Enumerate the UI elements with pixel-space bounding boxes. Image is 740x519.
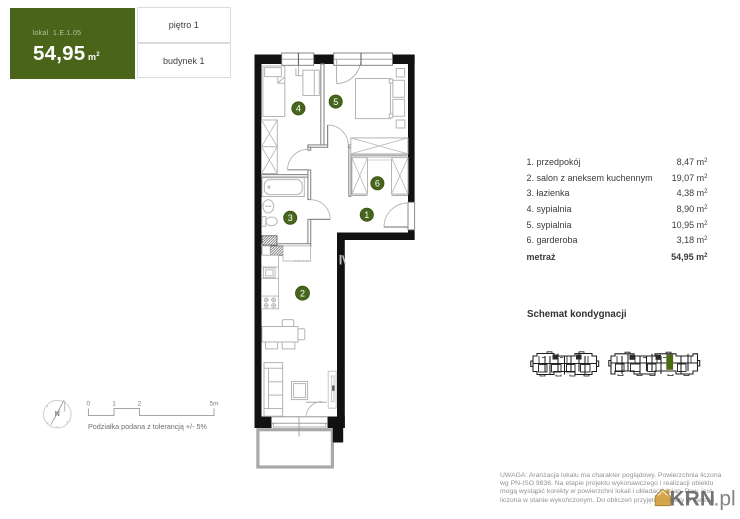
svg-text:3: 3 <box>288 213 293 223</box>
svg-text:6: 6 <box>375 179 380 189</box>
svg-text:2: 2 <box>300 289 305 299</box>
svg-text:1: 1 <box>364 210 369 220</box>
svg-text:5: 5 <box>333 97 338 107</box>
svg-text:4: 4 <box>296 104 301 114</box>
